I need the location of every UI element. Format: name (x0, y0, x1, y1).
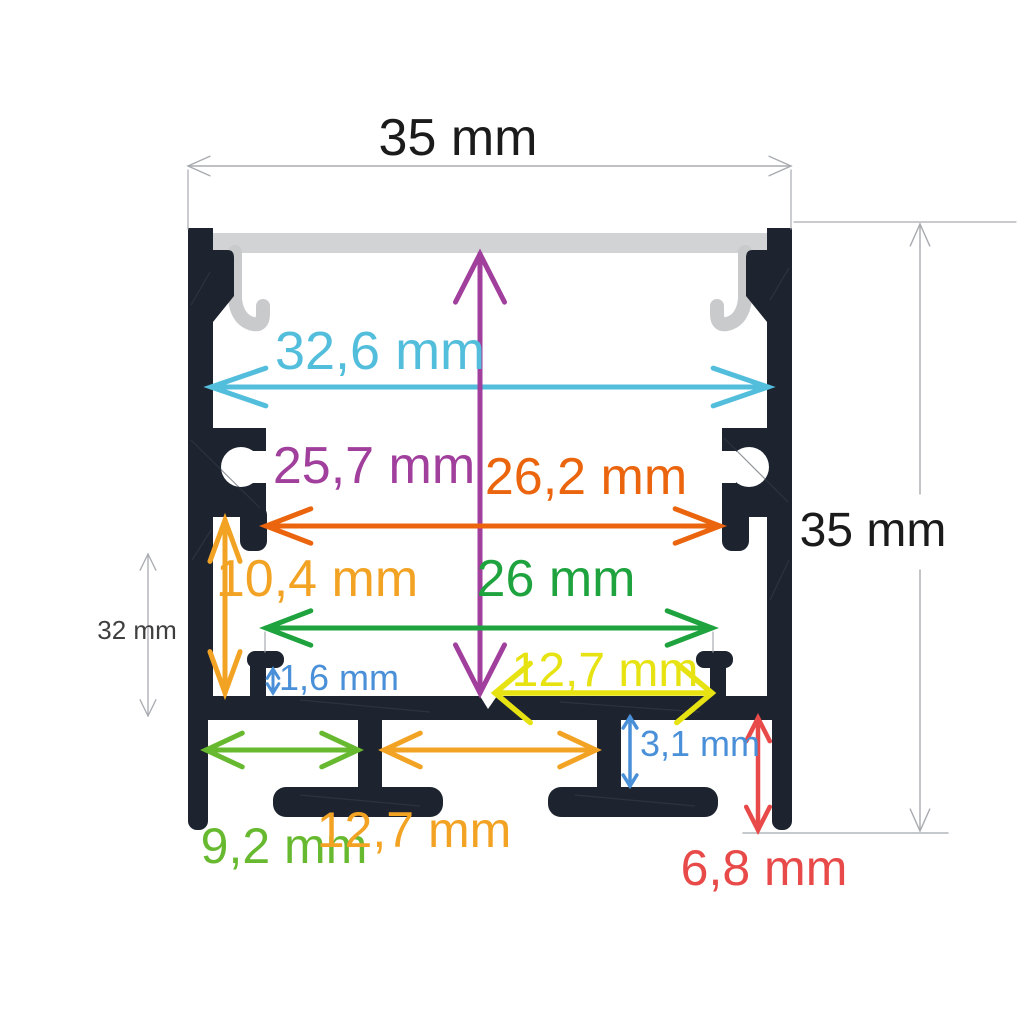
dim-line-overall-height-lower (910, 570, 930, 831)
dim-line-overall-height-upper (910, 224, 930, 494)
right-screw-channel-opening (722, 451, 736, 483)
arrow-left-channel-width (206, 733, 358, 767)
dimension-label-foot-height: 6,8 mm (681, 843, 848, 893)
right-foot-stem (597, 718, 621, 792)
left-inner-hook (240, 505, 267, 551)
right-top-lip (767, 228, 792, 258)
dimension-label-seat-width: 12,7 mm (512, 647, 699, 695)
dimension-label-ridge-height: 1,6 mm (279, 660, 399, 696)
diffuser-clip-left (235, 252, 263, 324)
dimension-label-foot-gap-height: 3,1 mm (640, 726, 760, 762)
dimension-label-overall-height: 35 mm (800, 507, 947, 555)
left-screw-channel-opening (253, 451, 267, 483)
arrow-center-channel-width (384, 733, 596, 767)
dimension-label-base-inner-width: 26 mm (477, 553, 636, 605)
arrow-foot-gap-height (623, 717, 637, 786)
arrow-mount-slot-span (266, 509, 720, 543)
dimension-label-inner-top-width: 32,6 mm (275, 324, 485, 378)
left-top-lip (188, 228, 213, 258)
dimension-label-mount-slot-span: 26,2 mm (485, 451, 687, 503)
left-strip-boss-stem (250, 662, 266, 698)
arrow-base-inner-width (266, 611, 712, 645)
dimension-label-center-channel-width: 12,7 mm (317, 805, 512, 855)
dimension-label-side-reference-height: 32 mm (97, 617, 176, 643)
dimension-diagram: 35 mm 35 mm 32,6 mm 25,7 mm 26,2 mm 10,4… (0, 0, 1024, 1024)
arrow-ridge-height (267, 669, 279, 693)
right-foot-rail (548, 787, 718, 817)
dimension-label-lower-cavity-height: 10,4 mm (216, 553, 418, 605)
right-inner-hook (722, 505, 749, 551)
left-foot-stem (358, 718, 382, 792)
dimension-label-top-width: 35 mm (379, 112, 538, 164)
dimension-label-inner-height: 25,7 mm (273, 440, 475, 492)
diffuser-clip-right (717, 252, 745, 324)
